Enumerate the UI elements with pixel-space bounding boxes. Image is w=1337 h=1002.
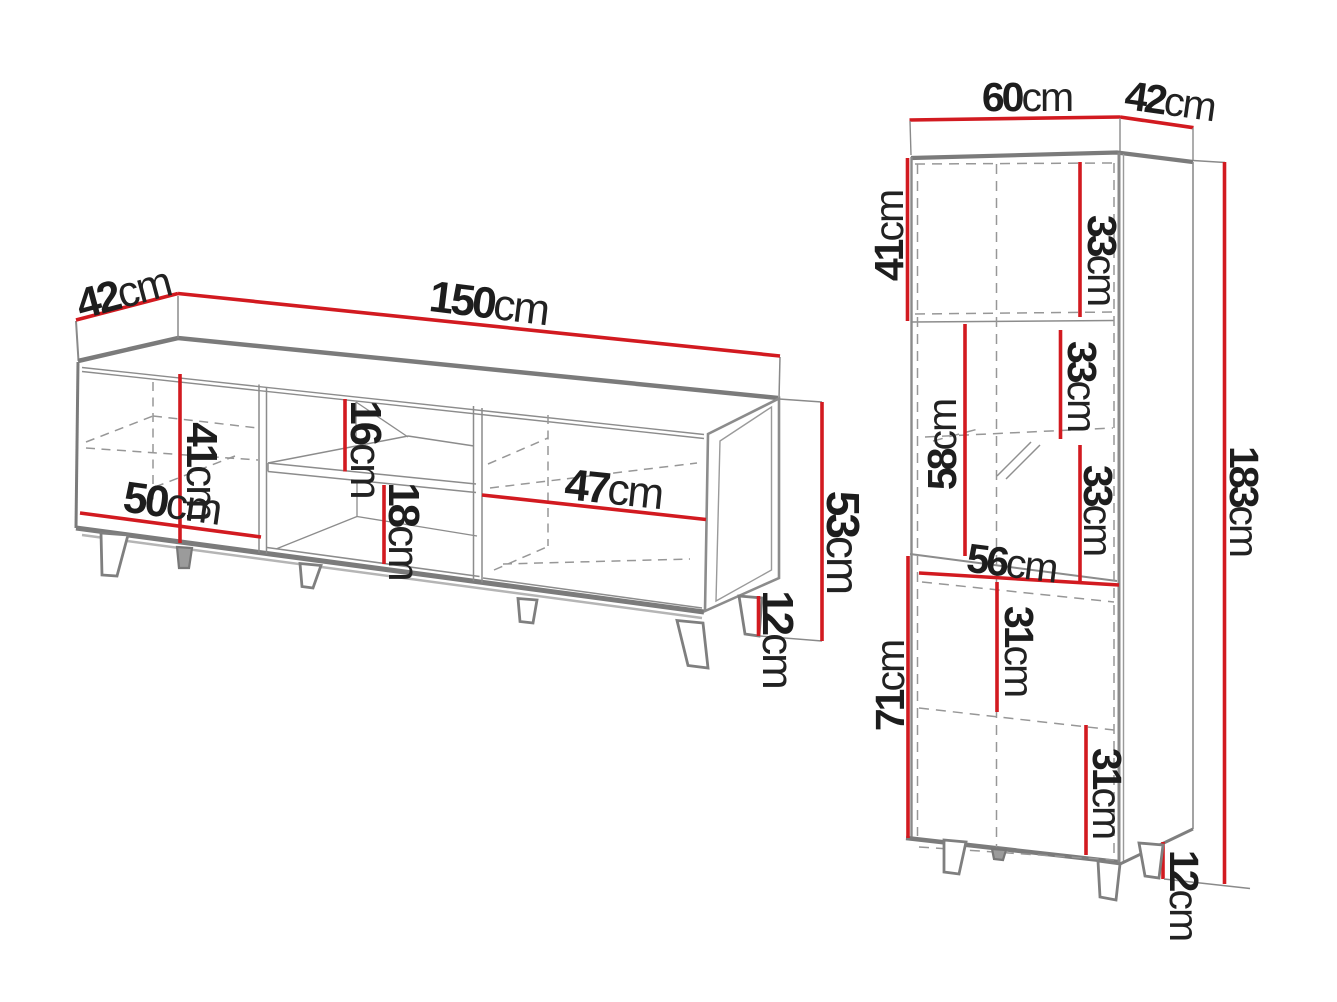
- svg-text:58cm: 58cm: [919, 400, 965, 490]
- svg-text:183cm: 183cm: [1221, 446, 1267, 556]
- svg-text:33cm: 33cm: [1075, 465, 1121, 555]
- svg-text:41cm: 41cm: [866, 191, 912, 281]
- svg-text:47cm: 47cm: [562, 460, 664, 519]
- svg-text:12cm: 12cm: [753, 590, 802, 688]
- svg-text:33cm: 33cm: [1059, 341, 1105, 431]
- svg-text:71cm: 71cm: [867, 641, 913, 731]
- svg-text:31cm: 31cm: [1084, 748, 1130, 838]
- svg-text:53cm: 53cm: [817, 491, 869, 594]
- svg-text:18cm: 18cm: [379, 482, 428, 580]
- svg-text:33cm: 33cm: [1079, 215, 1125, 305]
- svg-text:31cm: 31cm: [996, 606, 1042, 696]
- svg-text:60cm: 60cm: [982, 74, 1072, 120]
- svg-text:12cm: 12cm: [1161, 850, 1207, 940]
